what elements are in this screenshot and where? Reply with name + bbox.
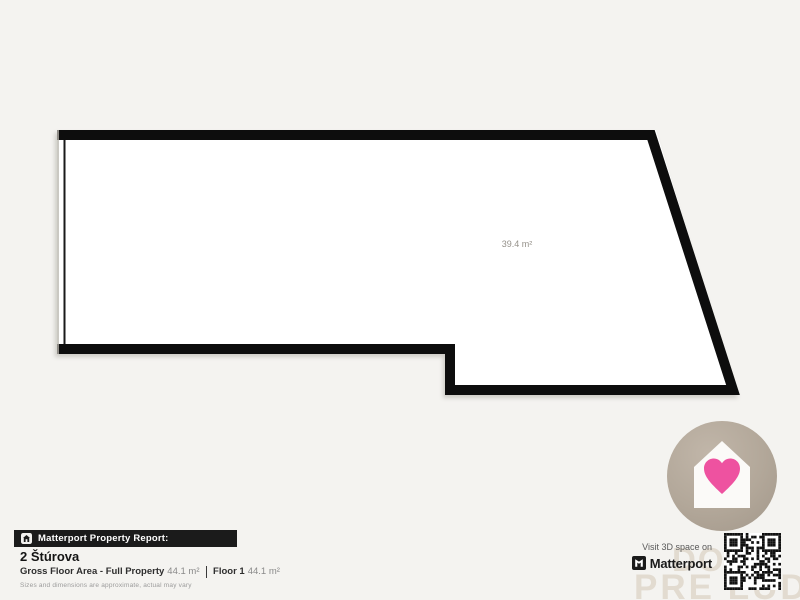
matterport-logo-icon <box>632 556 646 570</box>
room-area-label: 39.4 m² <box>502 239 533 249</box>
house-heart-icon <box>667 421 777 531</box>
gross-floor-area-value: 44.1 m² <box>167 566 199 577</box>
floor-label: Floor 1 <box>213 566 245 577</box>
property-title: 2 Štúrova <box>20 549 79 564</box>
details-divider <box>206 566 208 578</box>
matterport-brand-name: Matterport <box>650 556 712 571</box>
disclaimer-text: Sizes and dimensions are approximate, ac… <box>20 582 192 589</box>
qr-code[interactable] <box>724 533 781 590</box>
report-bar: Matterport Property Report: <box>14 530 237 547</box>
gross-floor-area-label: Gross Floor Area - Full Property <box>20 566 164 577</box>
house-icon <box>21 533 32 544</box>
agency-badge <box>667 421 777 531</box>
report-page: DO PRE ĽUDÍ 39.4 m² Matterport Property … <box>0 0 800 600</box>
floor-value: 44.1 m² <box>248 566 280 577</box>
matterport-logo-link[interactable]: Matterport <box>626 555 712 571</box>
report-bar-label: Matterport Property Report: <box>38 533 169 544</box>
floor-plan-interior <box>57 130 738 395</box>
visit-3d-space-text: Visit 3D space on <box>640 542 712 552</box>
property-details: Gross Floor Area - Full Property 44.1 m²… <box>20 565 280 578</box>
